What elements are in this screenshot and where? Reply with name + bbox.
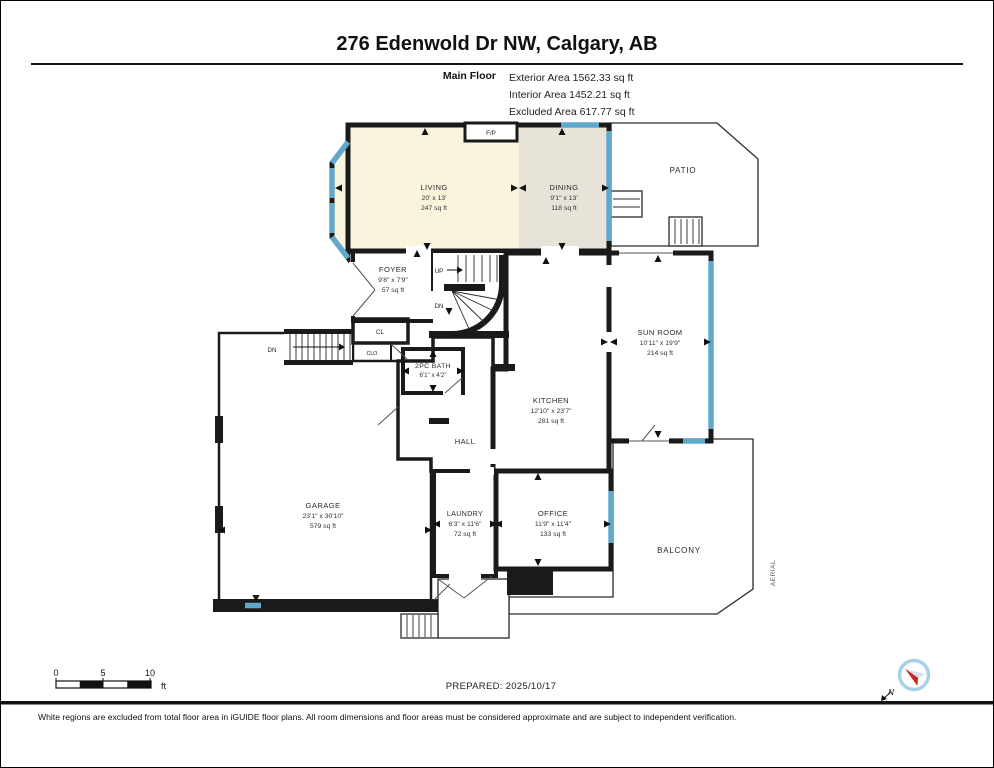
kitchen-dims: 12'10" x 23'7" bbox=[530, 408, 572, 415]
aerial-label: AERIAL bbox=[770, 560, 777, 586]
foyer-dims: 9'8" x 7'9" bbox=[378, 277, 408, 284]
disclaimer-text: White regions are excluded from total fl… bbox=[38, 712, 973, 722]
kitchen-room bbox=[493, 253, 609, 471]
footer-divider bbox=[1, 701, 994, 705]
hall-label: HALL bbox=[455, 437, 476, 446]
dining-dims: 9'1" x 13' bbox=[550, 195, 577, 202]
fireplace-label: F/P bbox=[486, 130, 496, 137]
floor-plan-svg: LIVING 20' x 13' 247 sq ft DINING 9'1" x… bbox=[1, 1, 994, 768]
main-staircase bbox=[429, 253, 509, 338]
dining-label: DINING bbox=[550, 183, 579, 192]
prepared-date: PREPARED: 2025/10/17 bbox=[446, 681, 556, 692]
sun-room bbox=[609, 253, 711, 441]
sunroom-dims: 10'11" x 19'9" bbox=[640, 340, 681, 347]
laundry-area: 72 sq ft bbox=[454, 531, 476, 538]
office-dims: 11'9" x 11'4" bbox=[535, 521, 572, 528]
opening-lines bbox=[619, 253, 673, 441]
scale-tick-10: 10 bbox=[145, 668, 155, 678]
closet2-label: CLO bbox=[367, 351, 378, 357]
foyer-area: 57 sq ft bbox=[382, 287, 404, 294]
kitchen-area: 281 sq ft bbox=[538, 418, 564, 425]
sunroom-area: 214 sq ft bbox=[647, 350, 673, 357]
patio-outline bbox=[611, 123, 758, 246]
closet-label: CL bbox=[376, 329, 384, 336]
foyer-label: FOYER bbox=[379, 265, 407, 274]
garage-stairs-dn-label: DN bbox=[268, 347, 277, 354]
garage-area: 579 sq ft bbox=[310, 523, 336, 530]
bath-dims: 6'1" x 4'2" bbox=[419, 372, 446, 379]
scale-bar: 0 5 10 ft bbox=[53, 668, 166, 691]
garage-dims: 23'1" x 30'10" bbox=[302, 513, 344, 520]
living-label: LIVING bbox=[420, 183, 447, 192]
office-label: OFFICE bbox=[538, 509, 568, 518]
scale-tick-0: 0 bbox=[53, 668, 58, 678]
laundry-label: LAUNDRY bbox=[447, 511, 483, 518]
living-dims: 20' x 13' bbox=[422, 195, 447, 202]
bath-label: 2PC BATH bbox=[415, 363, 451, 370]
floorplan-page: 276 Edenwold Dr NW, Calgary, AB Main Flo… bbox=[0, 0, 994, 768]
compass: N bbox=[881, 661, 929, 702]
balcony-label: BALCONY bbox=[657, 546, 701, 555]
stairs-dn-label: DN bbox=[435, 303, 444, 310]
scale-tick-5: 5 bbox=[100, 668, 105, 678]
living-area: 247 sq ft bbox=[421, 205, 447, 212]
stairs-up-label: UP bbox=[435, 268, 444, 275]
sunroom-label: SUN ROOM bbox=[638, 328, 683, 337]
laundry-dims: 6'3" x 11'6" bbox=[449, 521, 483, 528]
scale-unit: ft bbox=[161, 681, 167, 691]
kitchen-label: KITCHEN bbox=[533, 396, 569, 405]
office-area: 133 sq ft bbox=[540, 531, 566, 538]
dining-area: 118 sq ft bbox=[551, 205, 577, 212]
patio-label: PATIO bbox=[670, 166, 697, 175]
garage-label: GARAGE bbox=[306, 501, 341, 510]
